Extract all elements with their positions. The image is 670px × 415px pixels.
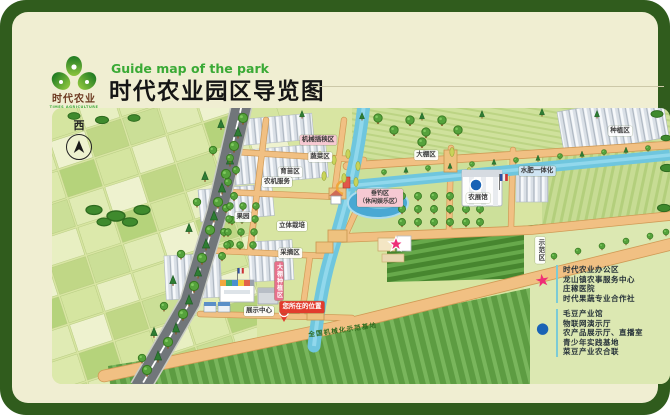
legend-star-group: ★ 时代农业办公区 龙山镇农事服务中心 庄稼医院 时代果蔬专业合作社 [529, 265, 670, 303]
legend-item: 物联网演示厅 [563, 319, 643, 329]
legend-item: 农产品展示厅、直播室 [563, 328, 643, 338]
legend-item: 时代果蔬专业合作社 [563, 294, 635, 304]
poster-frame: 时代农业 TIMES AGRICULTURE Guide map of the … [0, 0, 670, 415]
legend-item: 龙山镇农事服务中心 [563, 275, 635, 285]
legend-item: 毛豆产业馆 [563, 309, 643, 319]
expo-hall-dot-marker [470, 179, 482, 191]
legend-item: 时代农业办公区 [563, 265, 635, 275]
compass-arrow-icon [66, 134, 92, 160]
poster-card: 时代农业 TIMES AGRICULTURE Guide map of the … [12, 12, 658, 403]
map-legend: ★ 时代农业办公区 龙山镇农事服务中心 庄稼医院 时代果蔬专业合作社 ● 毛豆产… [529, 265, 670, 363]
compass: 西 [64, 120, 94, 160]
legend-item: 青少年实践基地 [563, 338, 643, 348]
park-logo: 时代农业 TIMES AGRICULTURE [44, 56, 104, 109]
you-are-here-pin [280, 308, 289, 317]
dot-marker-icon: ● [536, 321, 549, 336]
legend-item: 庄稼医院 [563, 284, 635, 294]
page-title: 时代农业园区导览图 [109, 74, 325, 106]
legend-item: 菜豆产业农合联 [563, 347, 643, 357]
header-divider [314, 86, 664, 87]
logo-name: 时代农业 [44, 94, 104, 105]
compass-west-label: 西 [64, 120, 94, 132]
star-marker-icon: ★ [534, 272, 552, 291]
park-logo-icon [50, 56, 98, 94]
legend-dot-group: ● 毛豆产业馆 物联网演示厅 农产品展示厅、直播室 青少年实践基地 菜豆产业农合… [529, 309, 670, 357]
